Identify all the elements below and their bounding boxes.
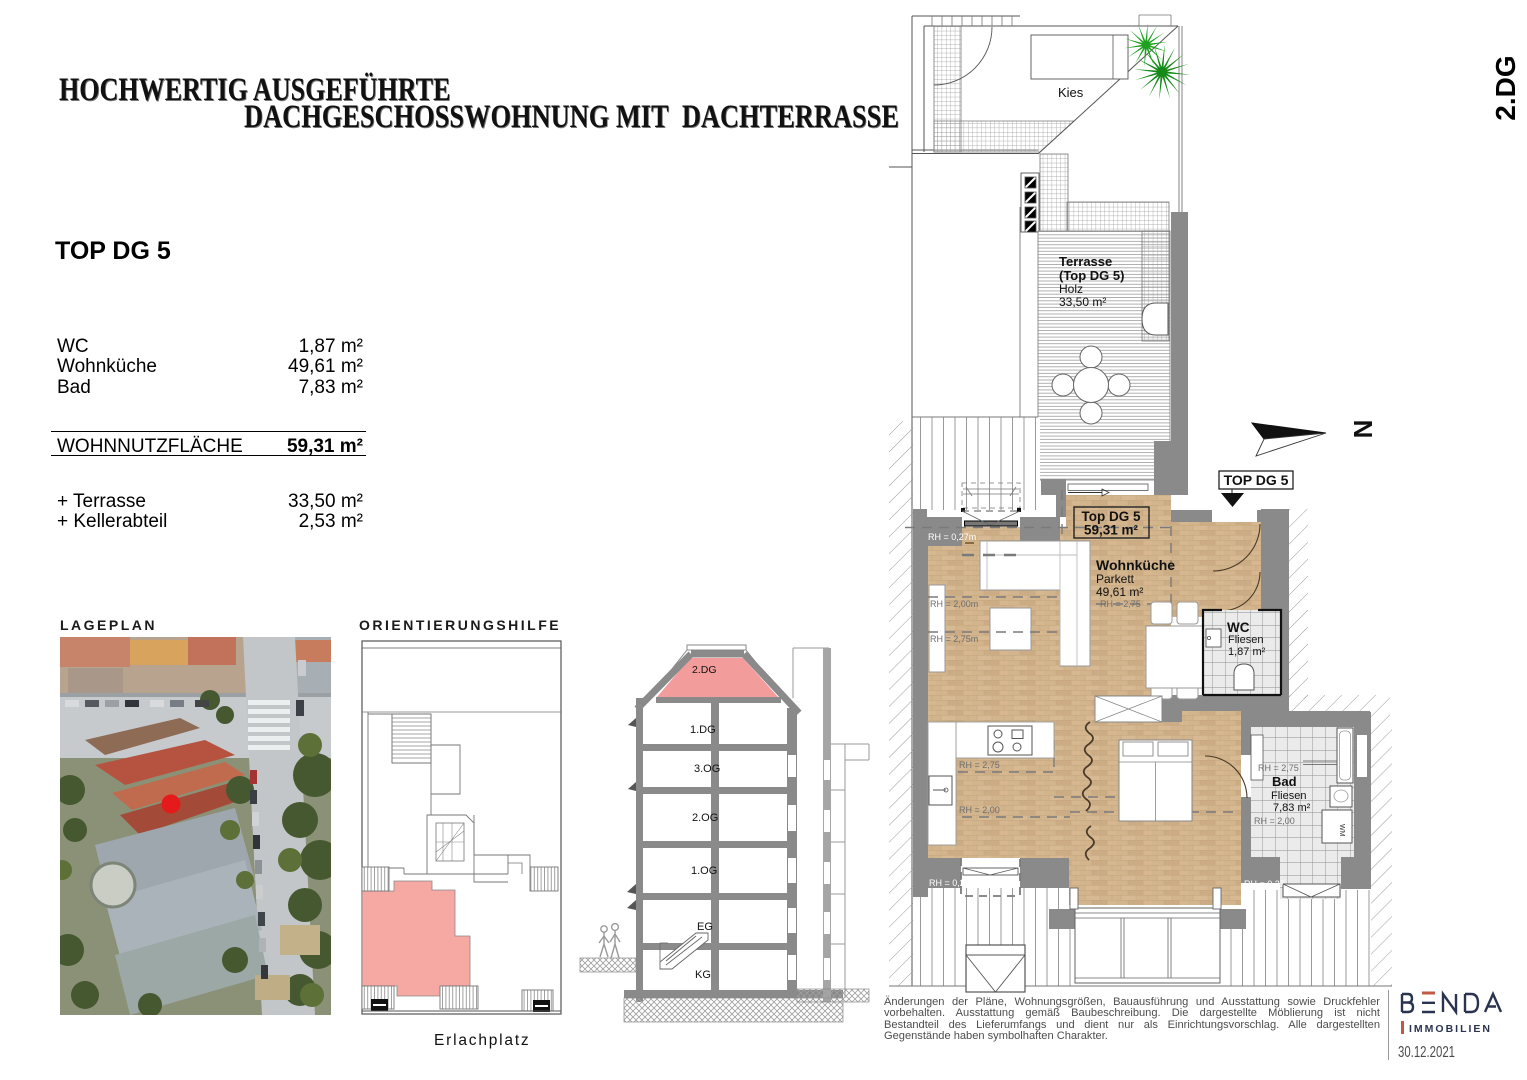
svg-text:Terrasse: Terrasse: [1059, 254, 1112, 269]
svg-text:2.OG: 2.OG: [692, 812, 718, 824]
svg-text:2.DG: 2.DG: [692, 664, 717, 676]
svg-text:Holz: Holz: [1059, 282, 1083, 296]
svg-text:RH = 2,75: RH = 2,75: [1100, 599, 1141, 609]
svg-text:WC: WC: [1227, 620, 1250, 635]
svg-text:3.OG: 3.OG: [694, 763, 720, 775]
svg-text:Bad: Bad: [1272, 774, 1297, 789]
svg-text:RH = 2,75: RH = 2,75: [1258, 763, 1299, 773]
svg-text:1,87 m²: 1,87 m²: [1228, 646, 1266, 658]
svg-text:RH = 2,00m: RH = 2,00m: [930, 599, 978, 609]
svg-text:Wohnküche: Wohnküche: [1096, 557, 1175, 573]
svg-text:RH = 2,75m: RH = 2,75m: [930, 634, 978, 644]
svg-text:RH = 0,27m: RH = 0,27m: [928, 532, 976, 542]
svg-text:Parkett: Parkett: [1096, 572, 1135, 586]
svg-text:7,83 m²: 7,83 m²: [1273, 802, 1311, 814]
svg-text:WM: WM: [1338, 824, 1345, 837]
svg-text:1.OG: 1.OG: [691, 865, 717, 877]
svg-text:RH = 2,00: RH = 2,00: [959, 805, 1000, 815]
svg-text:(Top DG 5): (Top DG 5): [1059, 268, 1124, 283]
svg-text:EG: EG: [697, 921, 713, 933]
svg-text:N: N: [1348, 420, 1378, 439]
svg-text:RH = 0,27: RH = 0,27: [1244, 879, 1285, 889]
svg-text:59,31 m²: 59,31 m²: [1084, 523, 1139, 538]
svg-text:Fliesen: Fliesen: [1228, 634, 1263, 646]
svg-text:RH = 2,00: RH = 2,00: [1254, 816, 1295, 826]
svg-text:Kies: Kies: [1058, 85, 1084, 100]
svg-text:1.DG: 1.DG: [690, 724, 716, 736]
svg-text:Erlachplatz: Erlachplatz: [434, 1032, 530, 1049]
svg-text:RH = 0,27: RH = 0,27: [929, 878, 970, 888]
svg-text:Fliesen: Fliesen: [1271, 790, 1306, 802]
svg-text:KG: KG: [695, 969, 711, 981]
svg-text:RH = 2,75: RH = 2,75: [959, 760, 1000, 770]
svg-text:49,61 m²: 49,61 m²: [1096, 585, 1143, 599]
svg-text:33,50 m²: 33,50 m²: [1059, 295, 1106, 309]
svg-text:TOP DG 5: TOP DG 5: [1224, 472, 1289, 488]
